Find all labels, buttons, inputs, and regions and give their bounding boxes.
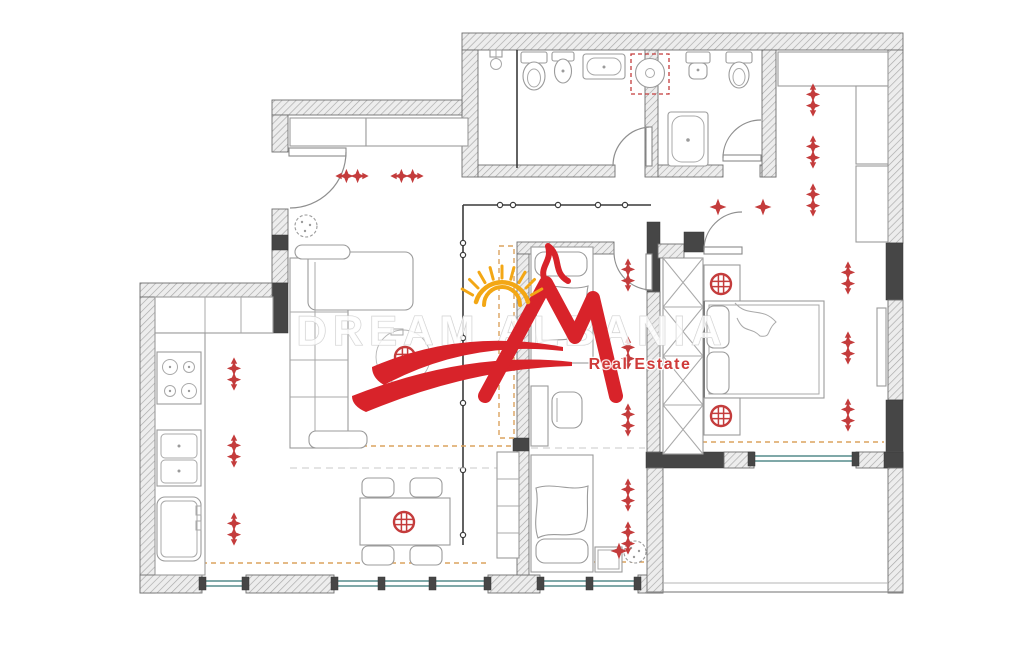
chair [410, 546, 442, 565]
toilet [521, 52, 547, 90]
floor-plan: DREAM ALBANIA Real Estate [0, 0, 1024, 650]
washbasin [686, 52, 710, 79]
bed-single-bottom [531, 455, 593, 572]
radiator [877, 308, 886, 386]
chair [410, 478, 442, 497]
fridge [157, 497, 201, 561]
desk-chair [552, 392, 582, 428]
shower-tray [668, 112, 708, 166]
kitchen-sink [157, 430, 201, 486]
entry-cabinet [290, 118, 468, 146]
chandelier-symbol [711, 406, 731, 426]
plant [295, 215, 317, 237]
watermark-tagline: Real Estate [589, 356, 692, 373]
chair [362, 478, 394, 497]
bookshelf [497, 452, 519, 558]
chandelier-symbol [394, 512, 414, 532]
desk [531, 386, 548, 446]
chandelier-symbol [711, 274, 731, 294]
floor-plan-page: DREAM ALBANIA Real Estate [0, 0, 1024, 650]
washbasin [583, 54, 625, 79]
chair [362, 546, 394, 565]
stove [157, 352, 201, 404]
